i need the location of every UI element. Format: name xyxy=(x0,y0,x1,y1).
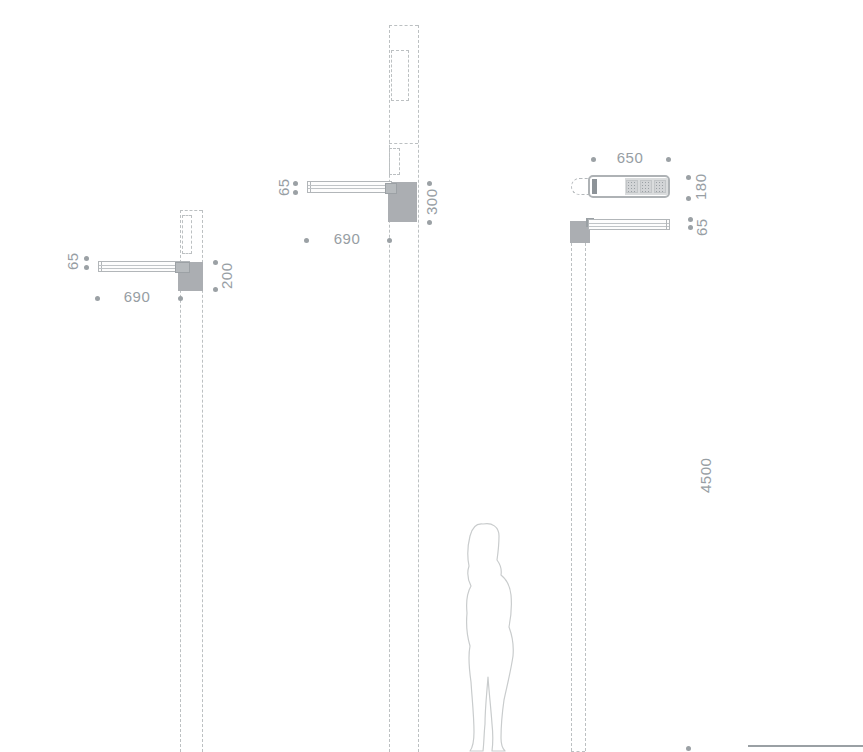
right-dim-4500-dot-bottom xyxy=(686,746,691,751)
right-pole-dashed-line-right xyxy=(585,243,586,751)
middle-dim-65-dot-top xyxy=(293,181,298,186)
left-pole-dashed-line-outer-left xyxy=(180,210,181,752)
right-plan-spigot-dashed-outline xyxy=(571,178,589,195)
left-arm-bracket xyxy=(175,262,190,273)
left-dim-65-label: 65 xyxy=(65,243,81,279)
middle-arm-profile-line xyxy=(308,188,391,189)
ground-line xyxy=(748,745,863,747)
right-dim-65-label: 65 xyxy=(694,209,710,245)
led-array-icon xyxy=(640,180,652,193)
left-pole-dashed-line-outer-right xyxy=(202,210,203,752)
left-dim-690-label: 690 xyxy=(117,289,157,305)
left-dim-200-label: 200 xyxy=(219,254,235,298)
right-arm-end-cap xyxy=(666,220,667,229)
left-dim-65-dot-top xyxy=(84,256,89,261)
middle-arm-bracket xyxy=(385,183,397,194)
left-pole-inner-dashed-box xyxy=(182,215,192,254)
left-arm-end-cap xyxy=(101,262,102,271)
middle-pole-dashed-line-outer-left xyxy=(389,25,390,752)
middle-dim-65-label: 65 xyxy=(276,169,292,205)
left-dim-65-dot-bottom xyxy=(84,265,89,270)
right-dim-650-dot-right xyxy=(666,157,671,162)
right-dim-180-label: 180 xyxy=(693,165,709,209)
middle-dim-300-label: 300 xyxy=(424,180,440,224)
left-pole-dashed-top xyxy=(180,210,202,211)
middle-dim-65-dot-bottom xyxy=(293,190,298,195)
middle-arm-profile-line xyxy=(308,185,391,186)
right-luminaire-arm-side xyxy=(588,219,670,230)
right-dim-650-dot-left xyxy=(591,157,596,162)
right-pole-dashed-line-left xyxy=(571,243,572,751)
middle-pole-dashed-top xyxy=(389,25,418,26)
middle-pole-dashed-line-outer-right xyxy=(418,25,419,752)
left-dim-690-dot-right xyxy=(178,296,183,301)
middle-arm-end-cap xyxy=(310,182,311,192)
human-silhouette xyxy=(443,520,533,752)
right-dim-180-dot-bottom xyxy=(686,196,691,201)
middle-dim-690-dot-left xyxy=(304,238,309,243)
middle-dim-690-label: 690 xyxy=(327,231,367,247)
right-arm-profile-line xyxy=(589,226,669,227)
right-dim-180-dot-top xyxy=(686,175,691,180)
middle-dim-690-dot-right xyxy=(387,238,392,243)
middle-pole-inner-dashed-box-lower xyxy=(389,148,400,175)
led-array-icon xyxy=(626,180,638,193)
middle-pole-inner-dashed-box-upper xyxy=(391,50,409,101)
middle-luminaire-arm xyxy=(307,181,392,193)
right-plan-brand-bar xyxy=(592,179,597,194)
right-plan-led-panel xyxy=(625,178,668,195)
middle-pole-dashed-joint-line xyxy=(389,143,418,144)
technical-drawing-canvas: 65 690 200 65 690 300 650 180 xyxy=(0,0,863,752)
led-array-icon xyxy=(654,180,666,193)
right-dim-650-label: 650 xyxy=(610,150,650,166)
right-dim-4500-label: 4500 xyxy=(698,447,714,503)
left-dim-690-dot-left xyxy=(95,296,100,301)
right-arm-profile-line xyxy=(589,223,669,224)
